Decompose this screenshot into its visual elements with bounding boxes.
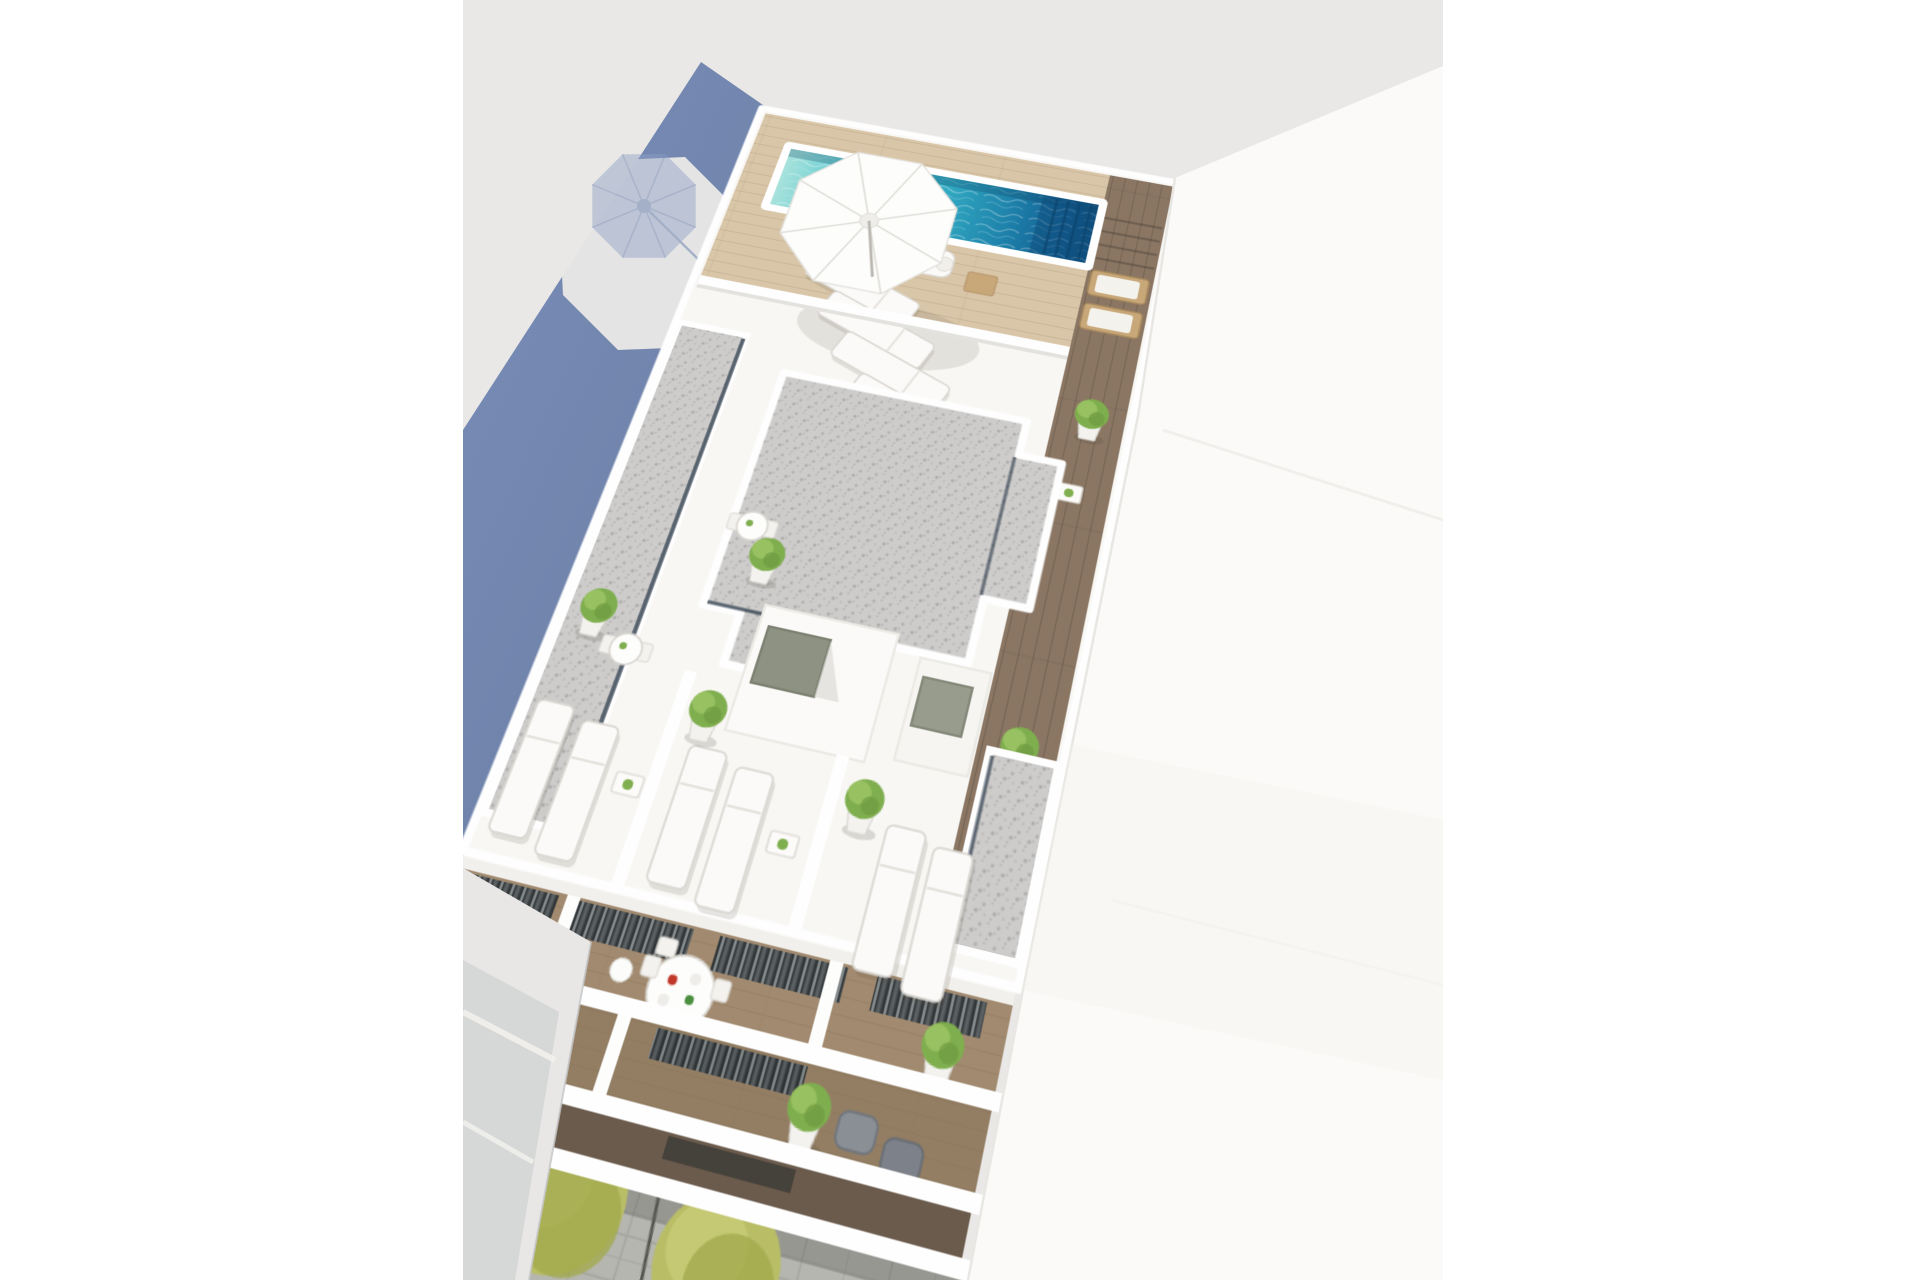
neighbor-building-left	[463, 868, 591, 1280]
neighbor-building-right	[968, 66, 1443, 1280]
left-white-margin	[0, 0, 463, 1280]
right-white-margin	[1443, 0, 1920, 1280]
screenshot-canvas	[0, 0, 1920, 1280]
render-image	[463, 0, 1443, 1280]
foreground-layer	[463, 0, 1443, 1280]
